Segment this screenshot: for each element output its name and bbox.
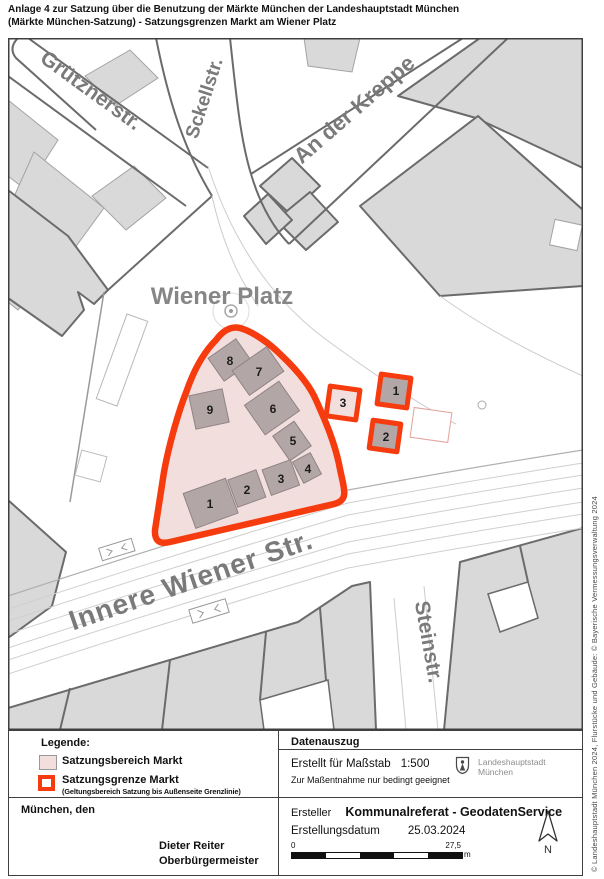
info-panel: Legende: Satzungsbereich Markt Satzungsg…: [8, 730, 583, 876]
small-parcel-outline-right: [550, 219, 583, 250]
coat-of-arms-text: Landeshauptstadt München: [478, 757, 546, 777]
legend-border-label: Satzungsgrenze Markt: [62, 774, 179, 786]
creation-date-value: 25.03.2024: [408, 825, 466, 837]
coat-line-1: Landeshauptstadt: [478, 757, 546, 767]
data-extract-divider: [279, 797, 582, 798]
market-building-6-label: 6: [270, 402, 277, 416]
coat-line-2: München: [478, 767, 546, 777]
market-building-9-label: 9: [207, 403, 214, 417]
legend-heading: Legende:: [41, 737, 90, 749]
market-building-1-label: 1: [207, 497, 214, 511]
scalebar: [291, 852, 463, 859]
legend-border-note: (Geltungsbereich Satzung bis Außenseite …: [62, 787, 241, 796]
north-arrow-icon: N: [535, 809, 561, 855]
small-stand-outline: [410, 408, 452, 443]
market-stand-1-label: 1: [393, 384, 400, 398]
scale-row: Erstellt für Maßstab1:500: [291, 758, 429, 770]
scale-label: Erstellt für Maßstab: [291, 758, 391, 770]
page: Anlage 4 zur Satzung über die Benutzung …: [0, 0, 604, 879]
street-label-wiener-platz: Wiener Platz: [151, 283, 294, 310]
signer-title: Oberbürgermeister: [159, 854, 259, 869]
scalebar-start-label: 0: [291, 841, 295, 850]
market-stand-3-label: 3: [340, 396, 347, 410]
signer-name: Dieter Reiter: [159, 839, 259, 854]
place-date-line: München, den: [21, 804, 95, 816]
data-extract-heading: Datenauszug: [279, 731, 582, 750]
title-line-1: Anlage 4 zur Satzung über die Benutzung …: [8, 3, 600, 16]
market-stand-2-label: 2: [383, 430, 390, 444]
legend-box: Legende: Satzungsbereich Markt Satzungsg…: [9, 731, 279, 875]
legend-area-swatch: [39, 755, 57, 770]
scale-value: 1:500: [401, 758, 430, 770]
market-building-3-label: 3: [278, 472, 285, 486]
market-building-5-label: 5: [290, 434, 297, 448]
copyright-note: © Landeshauptstadt München 2024, Flurstü…: [590, 397, 599, 872]
scalebar-end-label: 27,5: [427, 841, 461, 850]
creator-label: Ersteller: [291, 807, 331, 819]
map-canvas: Grütznerstr. Sckellstr. An der Kreppe Wi…: [8, 38, 583, 730]
market-building-2-label: 2: [244, 483, 251, 497]
legend-border-swatch: [38, 775, 55, 791]
market-building-7-label: 7: [256, 365, 263, 379]
creator-value: Kommunalreferat - GeodatenService: [345, 805, 562, 819]
title-line-2: (Märkte München-Satzung) - Satzungsgrenz…: [8, 16, 600, 29]
north-label: N: [544, 844, 552, 855]
creator-row: ErstellerKommunalreferat - GeodatenServi…: [291, 805, 562, 819]
market-building-4-label: 4: [305, 462, 312, 476]
creation-date-label: Erstellungsdatum: [291, 825, 380, 837]
document-title: Anlage 4 zur Satzung über die Benutzung …: [8, 3, 600, 29]
munich-coat-of-arms-icon: [455, 756, 470, 775]
scale-note: Zur Maßentnahme nur bedingt geeignet: [291, 775, 450, 785]
creation-date-row: Erstellungsdatum25.03.2024: [291, 825, 465, 837]
market-building-8-label: 8: [227, 354, 234, 368]
legend-area-label: Satzungsbereich Markt: [62, 755, 182, 767]
legend-divider: [9, 797, 278, 798]
scalebar-unit-label: m: [464, 850, 471, 859]
signature-block: Dieter Reiter Oberbürgermeister: [159, 839, 259, 869]
data-extract-box: Datenauszug Erstellt für Maßstab1:500 Zu…: [279, 731, 582, 875]
